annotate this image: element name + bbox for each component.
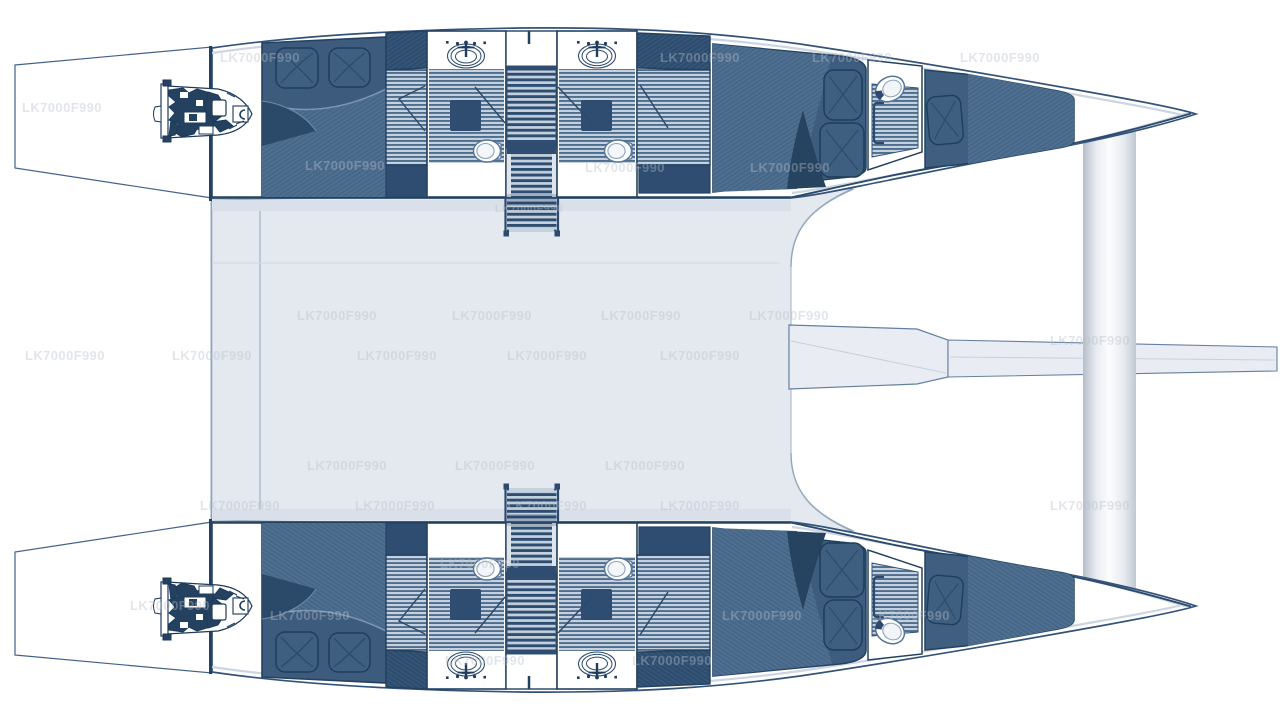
- svg-text:LK7000F990: LK7000F990: [200, 498, 280, 513]
- svg-text:LK7000F990: LK7000F990: [297, 308, 377, 323]
- svg-text:LK7000F990: LK7000F990: [445, 653, 525, 668]
- svg-text:LK7000F990: LK7000F990: [1050, 498, 1130, 513]
- svg-text:LK7000F990: LK7000F990: [355, 498, 435, 513]
- svg-text:LK7000F990: LK7000F990: [357, 348, 437, 363]
- svg-text:LK7000F990: LK7000F990: [307, 458, 387, 473]
- svg-text:LK7000F990: LK7000F990: [605, 458, 685, 473]
- svg-text:LK7000F990: LK7000F990: [660, 50, 740, 65]
- svg-text:LK7000F990: LK7000F990: [130, 598, 210, 613]
- svg-text:LK7000F990: LK7000F990: [220, 50, 300, 65]
- svg-text:LK7000F990: LK7000F990: [25, 348, 105, 363]
- svg-text:LK7000F990: LK7000F990: [270, 608, 350, 623]
- svg-text:LK7000F990: LK7000F990: [722, 608, 802, 623]
- svg-text:LK7000F990: LK7000F990: [750, 160, 830, 175]
- svg-text:LK7000F990: LK7000F990: [660, 498, 740, 513]
- svg-text:LK7000F990: LK7000F990: [585, 160, 665, 175]
- svg-text:LK7000F990: LK7000F990: [1050, 333, 1130, 348]
- svg-text:LK7000F990: LK7000F990: [870, 608, 950, 623]
- svg-text:LK7000F990: LK7000F990: [632, 653, 712, 668]
- svg-text:LK7000F990: LK7000F990: [495, 203, 563, 215]
- svg-text:LK7000F990: LK7000F990: [960, 50, 1040, 65]
- svg-text:LK7000F990: LK7000F990: [601, 308, 681, 323]
- svg-text:LK7000F990: LK7000F990: [455, 458, 535, 473]
- svg-text:LK7000F990: LK7000F990: [22, 100, 102, 115]
- svg-text:LK7000F990: LK7000F990: [440, 556, 520, 571]
- svg-text:LK7000F990: LK7000F990: [660, 348, 740, 363]
- svg-text:LK7000F990: LK7000F990: [749, 308, 829, 323]
- svg-text:LK7000F990: LK7000F990: [812, 50, 892, 65]
- svg-text:LK7000F990: LK7000F990: [507, 498, 587, 513]
- svg-text:LK7000F990: LK7000F990: [305, 158, 385, 173]
- svg-text:LK7000F990: LK7000F990: [507, 348, 587, 363]
- svg-text:LK7000F990: LK7000F990: [172, 348, 252, 363]
- svg-text:LK7000F990: LK7000F990: [452, 308, 532, 323]
